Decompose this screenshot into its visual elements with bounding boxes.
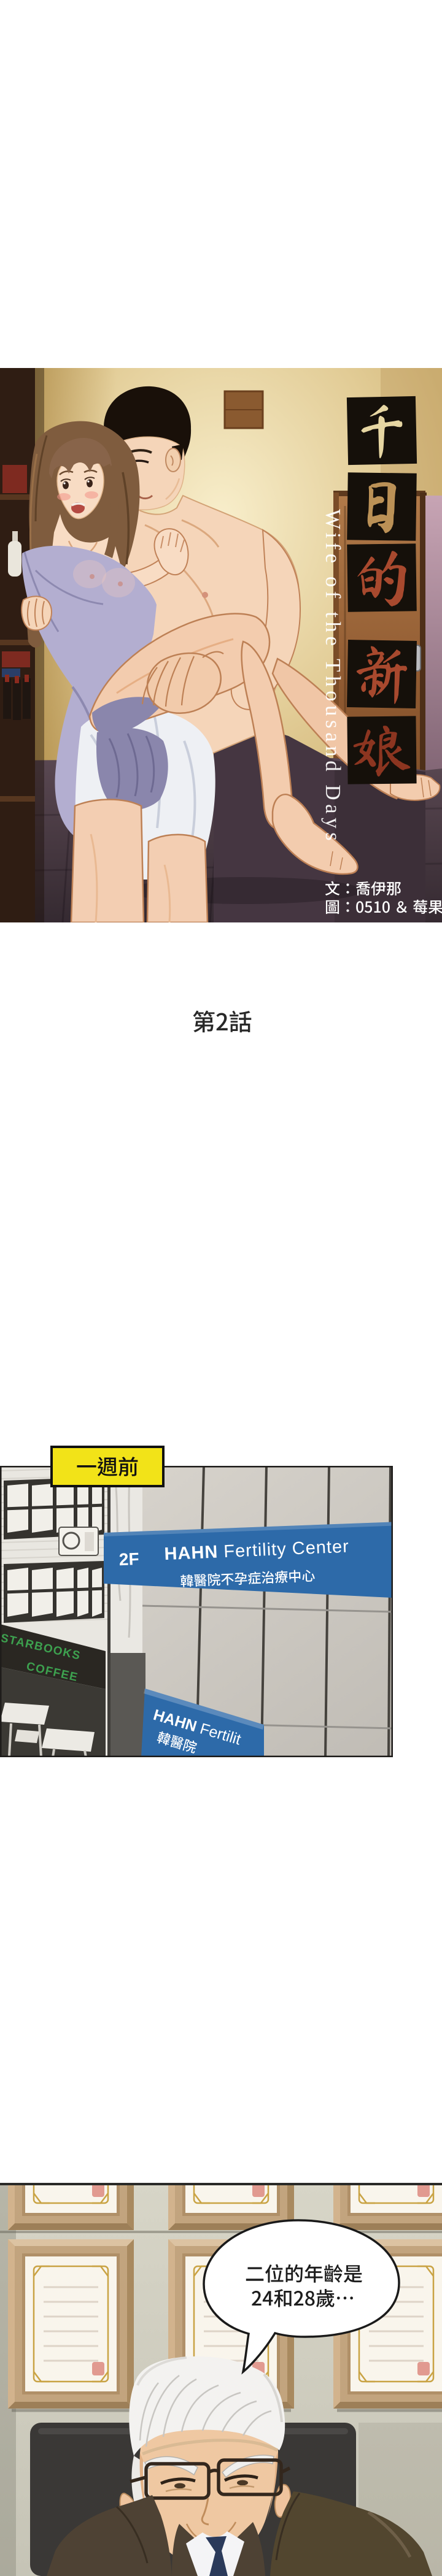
svg-text:Wife of the Thousand Days: Wife of the Thousand Days	[321, 509, 345, 845]
svg-text:2F: 2F	[118, 1549, 139, 1569]
